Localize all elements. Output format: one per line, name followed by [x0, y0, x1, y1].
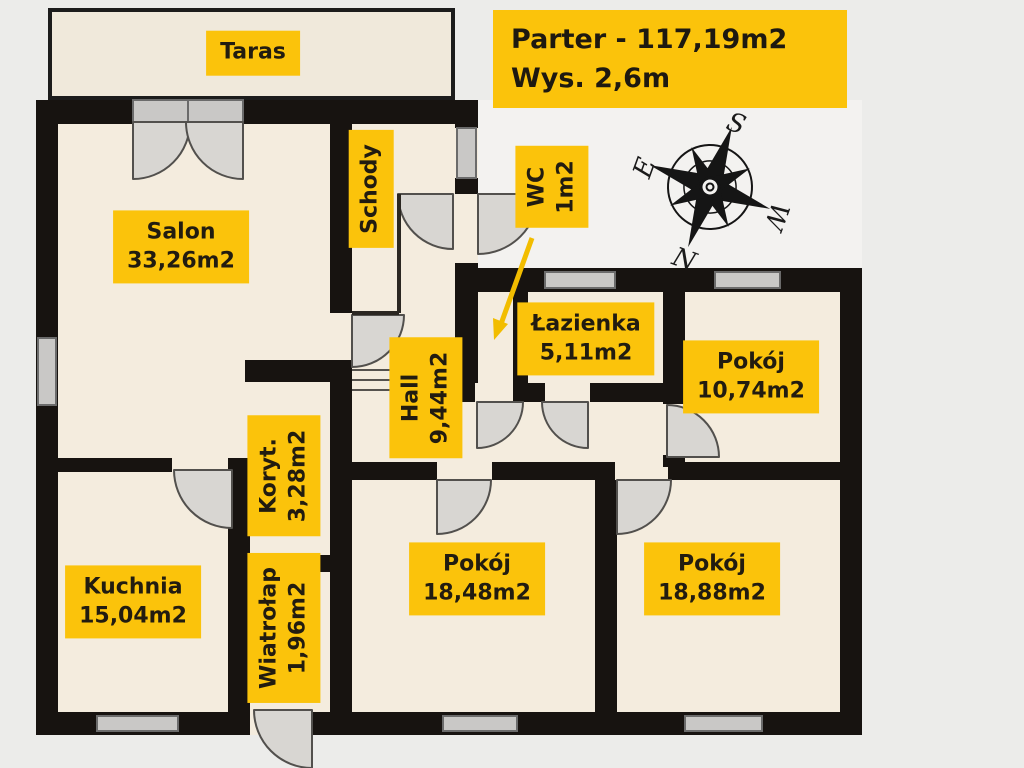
room-label-schody: Schody: [349, 130, 394, 248]
room-label-lazienka: Łazienka5,11m2: [517, 302, 654, 375]
window-stairs-right: [457, 128, 476, 178]
room-area: 3,28m2: [284, 430, 313, 523]
room-area: 1,96m2: [284, 567, 313, 689]
window-salon-left: [38, 338, 56, 405]
room-name: Łazienka: [531, 311, 640, 336]
floor-plan-canvas: S E W N TarasSalon33,26m2SchodyWC1m2Łazi…: [0, 0, 1024, 768]
window-top-room: [715, 272, 780, 288]
room-label-pokoj-1074: Pokój10,74m2: [683, 340, 819, 413]
room-label-kuchnia: Kuchnia15,04m2: [65, 565, 201, 638]
room-label-salon: Salon33,26m2: [113, 210, 249, 283]
window-bottom-kitchen: [97, 716, 178, 731]
room-name: Pokój: [717, 349, 785, 374]
room-label-pokoj-1888: Pokój18,88m2: [644, 542, 780, 615]
window-bottom-room-1888: [685, 716, 762, 731]
room-label-koryt: Koryt.3,28m2: [247, 416, 320, 537]
window-bottom-room-1848: [443, 716, 517, 731]
room-name: Schody: [358, 144, 383, 234]
room-area: 9,44m2: [426, 352, 455, 445]
room-label-pokoj-1848: Pokój18,48m2: [409, 542, 545, 615]
french-door-leaf-left: [133, 100, 188, 122]
room-name: WC: [524, 167, 549, 207]
room-area: 1m2: [552, 160, 581, 214]
room-name: Pokój: [443, 551, 511, 576]
room-label-hall: Hall9,44m2: [389, 338, 462, 459]
room-area: 33,26m2: [127, 247, 235, 276]
room-area: 5,11m2: [531, 339, 640, 368]
room-label-wiatrolap: Wiatrołap1,96m2: [247, 553, 320, 703]
room-name: Taras: [220, 40, 286, 65]
room-name: Kuchnia: [83, 574, 182, 599]
title-box: Parter - 117,19m2 Wys. 2,6m: [493, 10, 847, 108]
entrance-door-swing: [254, 710, 312, 768]
room-name: Salon: [146, 219, 215, 244]
title-line-height: Wys. 2,6m: [511, 59, 829, 98]
room-area: 10,74m2: [697, 377, 805, 406]
title-line-area: Parter - 117,19m2: [511, 20, 829, 59]
room-name: Wiatrołap: [256, 567, 281, 689]
floor-plan-drawing: S E W N: [0, 0, 1024, 768]
room-area: 18,88m2: [658, 579, 766, 608]
room-label-wc: WC1m2: [515, 146, 588, 228]
room-name: Pokój: [678, 551, 746, 576]
room-name: Hall: [398, 374, 423, 422]
room-area: 18,48m2: [423, 579, 531, 608]
room-label-taras: Taras: [206, 31, 300, 76]
room-name: Koryt.: [256, 438, 281, 514]
room-area: 15,04m2: [79, 602, 187, 631]
french-door-leaf-right: [188, 100, 243, 122]
window-top-bathroom: [545, 272, 615, 288]
